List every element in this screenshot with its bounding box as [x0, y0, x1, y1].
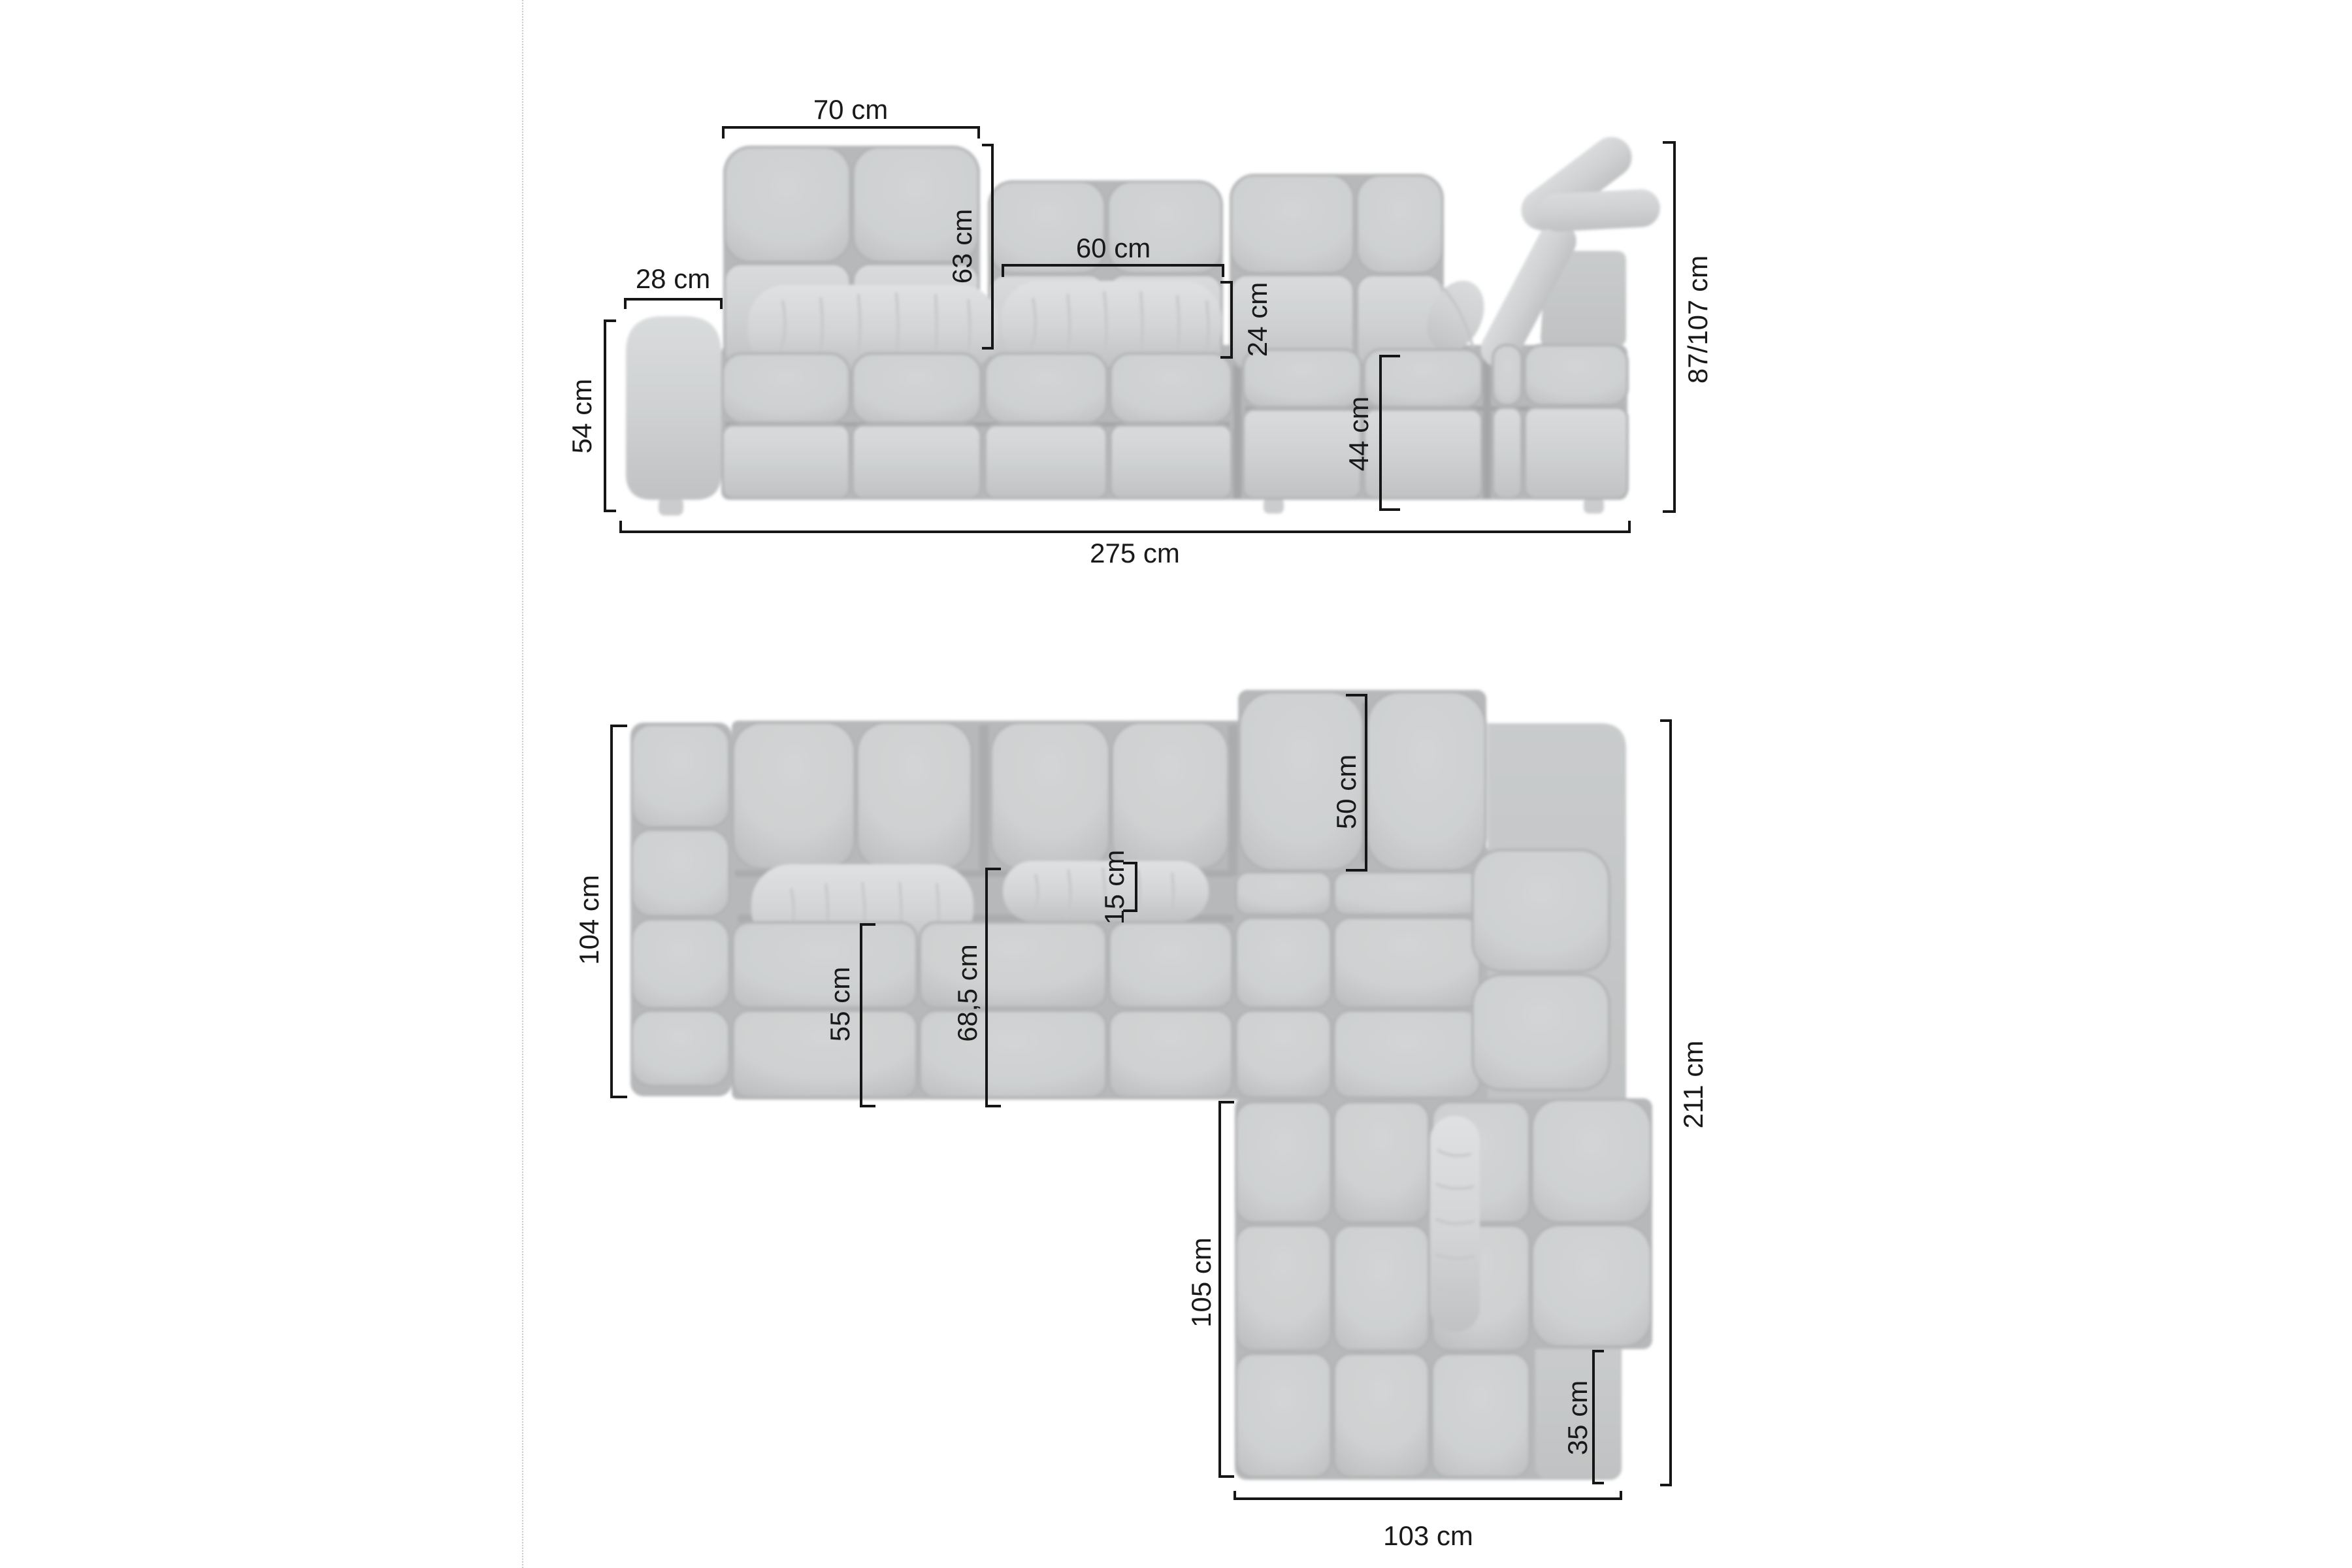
- svg-text:28 cm: 28 cm: [636, 263, 710, 294]
- svg-text:50 cm: 50 cm: [1331, 755, 1362, 829]
- svg-text:104 cm: 104 cm: [574, 875, 604, 965]
- svg-text:211 cm: 211 cm: [1678, 1041, 1708, 1129]
- svg-text:87/107 cm: 87/107 cm: [1682, 255, 1713, 384]
- svg-text:105 cm: 105 cm: [1186, 1237, 1217, 1328]
- svg-text:275 cm: 275 cm: [1090, 538, 1180, 568]
- svg-text:15 cm: 15 cm: [1099, 850, 1130, 924]
- svg-text:44 cm: 44 cm: [1343, 397, 1374, 471]
- svg-text:63 cm: 63 cm: [947, 209, 977, 284]
- svg-text:55 cm: 55 cm: [825, 967, 855, 1041]
- svg-text:70 cm: 70 cm: [813, 94, 888, 125]
- svg-text:60 cm: 60 cm: [1076, 233, 1151, 263]
- svg-text:54 cm: 54 cm: [566, 379, 597, 453]
- svg-text:35 cm: 35 cm: [1562, 1380, 1593, 1455]
- svg-text:68,5 cm: 68,5 cm: [952, 944, 983, 1041]
- svg-text:24 cm: 24 cm: [1242, 282, 1273, 357]
- svg-text:103 cm: 103 cm: [1383, 1520, 1473, 1551]
